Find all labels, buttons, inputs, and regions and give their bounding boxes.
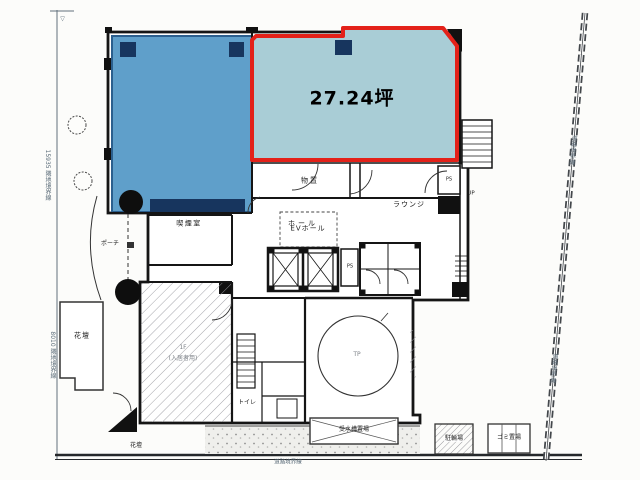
flower-bed-label-2: 花壇 [130, 443, 142, 449]
hatched-room [141, 283, 231, 422]
water-tank-label: 受水槽置場 [339, 427, 369, 433]
turntable-label: TP [353, 352, 360, 358]
bicycle-parking-label: 駐輪場 [444, 436, 464, 442]
smoking-room-label: 喫煙室 [176, 221, 202, 228]
storage-room-label: 物置 [301, 178, 319, 185]
tree-symbols [68, 116, 92, 190]
machine-room-note-1: 1F [179, 345, 186, 351]
flower-bed-outline [60, 302, 103, 390]
occupied-unit [112, 36, 252, 212]
boundary-corner-mark: ▽ [59, 16, 65, 23]
floor-plan-page: 27.24坪 物置 ラウンジ 喫煙室 ホール EVホール トイレ ポーチ 花壇 … [0, 0, 640, 480]
up-label: UP [467, 191, 474, 197]
floor-plan-drawing [0, 0, 640, 480]
garbage-storage-label: ゴミ置場 [497, 435, 521, 441]
boundary-left-lower-label: 8010 隣地境界線 [49, 331, 55, 378]
unit-area-label: 27.24坪 [309, 90, 394, 109]
column [119, 190, 143, 214]
ramp-triangle [108, 407, 137, 432]
ps-label: PS [446, 178, 452, 183]
boundary-right-upper-label: 道路境界線 [568, 135, 577, 165]
column [115, 279, 141, 305]
unit-pillar [335, 40, 352, 55]
lounge-label: ラウンジ [393, 202, 425, 209]
boundary-right-lower-label: 道路境界線 [549, 353, 558, 383]
flower-bed-label: 花壇 [74, 333, 90, 340]
porch-label: ポーチ [101, 241, 119, 247]
toilet-label: トイレ [238, 400, 256, 406]
ps-label-2: PS [347, 265, 353, 270]
boundary-left-upper-label: 15935 隣地境界線 [44, 150, 50, 201]
boundary-bottom-label: 道路境界線 [274, 460, 302, 466]
ev-hall-label: EVホール [290, 226, 325, 233]
machine-room-note-2: (入居者用) [169, 356, 198, 362]
